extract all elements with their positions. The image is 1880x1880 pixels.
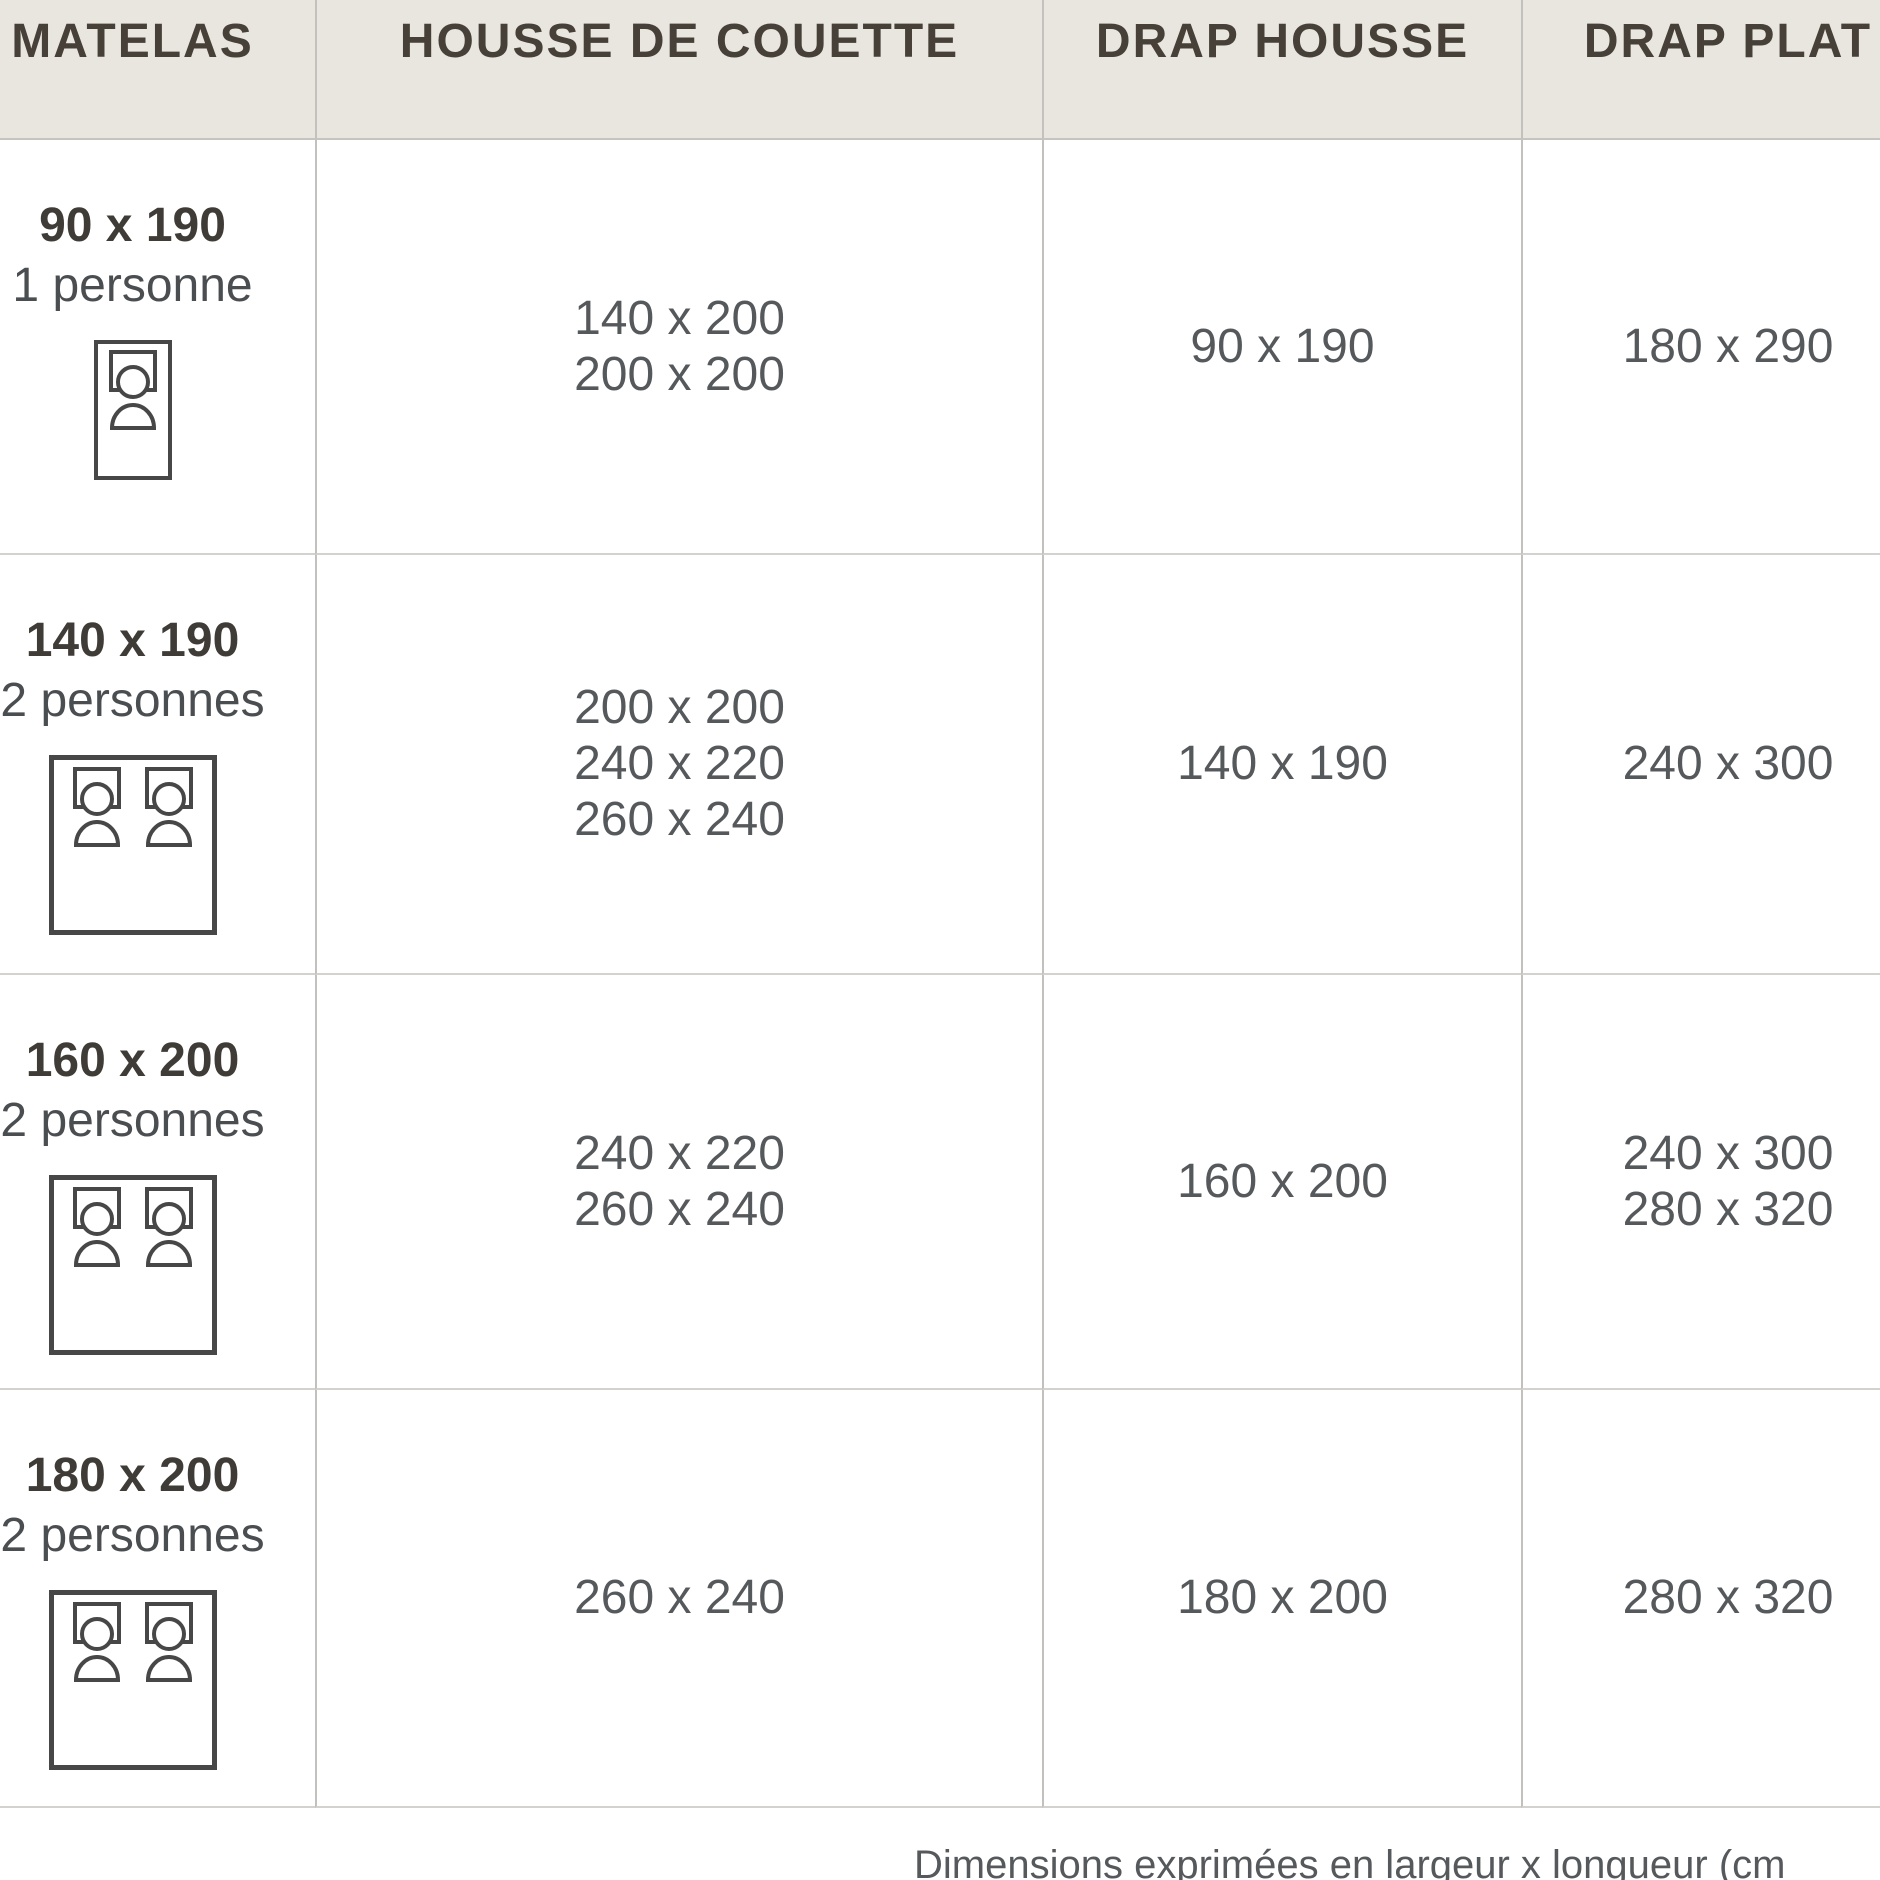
drap-plat-cell: 240 x 300 — [1521, 555, 1880, 975]
housse-de-couette-cell: 260 x 240 — [315, 1390, 1042, 1808]
drap-plat-cell: 280 x 320 — [1521, 1390, 1880, 1808]
persons-label: 2 personnes — [0, 671, 264, 731]
drap-plat-value: 240 x 300 — [1623, 736, 1834, 792]
drap-housse-cell: 90 x 190 — [1042, 140, 1521, 555]
mattress-size-label: 160 x 200 — [26, 1031, 240, 1091]
drap-housse-value: 140 x 190 — [1177, 736, 1388, 792]
matelas-cell: 160 x 200 2 personnes — [0, 975, 315, 1390]
persons-label: 2 personnes — [0, 1091, 264, 1151]
double-bed-icon — [49, 1175, 217, 1355]
column-header-housse-de-couette-label: HOUSSE DE COUETTE — [400, 14, 959, 69]
matelas-cell: 140 x 190 2 personnes — [0, 555, 315, 975]
drap-housse-cell: 180 x 200 — [1042, 1390, 1521, 1808]
housse-de-couette-value: 240 x 220 260 x 240 — [574, 1126, 785, 1238]
dimensions-note: Dimensions exprimées en largeur x longue… — [914, 1843, 1785, 1880]
double-bed-icon — [49, 1590, 217, 1770]
column-header-matelas-label: MATELAS — [11, 14, 253, 69]
persons-label: 2 personnes — [0, 1506, 264, 1566]
drap-plat-value: 280 x 320 — [1623, 1570, 1834, 1626]
column-header-drap-housse-label: DRAP HOUSSE — [1096, 14, 1469, 69]
drap-plat-value: 240 x 300 280 x 320 — [1623, 1126, 1834, 1238]
drap-plat-cell: 180 x 290 — [1521, 140, 1880, 555]
bedding-size-guide: MATELAS HOUSSE DE COUETTE DRAP HOUSSE DR… — [0, 0, 1880, 1880]
housse-de-couette-cell: 200 x 200 240 x 220 260 x 240 — [315, 555, 1042, 975]
mattress-size-label: 90 x 190 — [39, 196, 226, 256]
persons-label: 1 personne — [12, 256, 252, 316]
drap-plat-cell: 240 x 300 280 x 320 — [1521, 975, 1880, 1390]
column-header-drap-plat-label: DRAP PLAT — [1584, 14, 1872, 69]
housse-de-couette-value: 260 x 240 — [574, 1570, 785, 1626]
column-header-drap-plat: DRAP PLAT — [1521, 0, 1880, 140]
single-bed-icon — [94, 340, 172, 480]
double-bed-icon — [49, 755, 217, 935]
drap-housse-value: 90 x 190 — [1190, 319, 1374, 375]
housse-de-couette-cell: 240 x 220 260 x 240 — [315, 975, 1042, 1390]
mattress-size-label: 180 x 200 — [26, 1446, 240, 1506]
column-header-drap-housse: DRAP HOUSSE — [1042, 0, 1521, 140]
drap-housse-cell: 160 x 200 — [1042, 975, 1521, 1390]
drap-housse-value: 180 x 200 — [1177, 1570, 1388, 1626]
drap-plat-value: 180 x 290 — [1623, 319, 1834, 375]
drap-housse-cell: 140 x 190 — [1042, 555, 1521, 975]
column-header-housse-de-couette: HOUSSE DE COUETTE — [315, 0, 1042, 140]
mattress-size-label: 140 x 190 — [26, 611, 240, 671]
drap-housse-value: 160 x 200 — [1177, 1154, 1388, 1210]
bedding-size-table: MATELAS HOUSSE DE COUETTE DRAP HOUSSE DR… — [0, 0, 1880, 1808]
housse-de-couette-value: 140 x 200 200 x 200 — [574, 291, 785, 403]
column-header-matelas: MATELAS — [0, 0, 315, 140]
matelas-cell: 180 x 200 2 personnes — [0, 1390, 315, 1808]
housse-de-couette-cell: 140 x 200 200 x 200 — [315, 140, 1042, 555]
matelas-cell: 90 x 190 1 personne — [0, 140, 315, 555]
housse-de-couette-value: 200 x 200 240 x 220 260 x 240 — [574, 680, 785, 848]
